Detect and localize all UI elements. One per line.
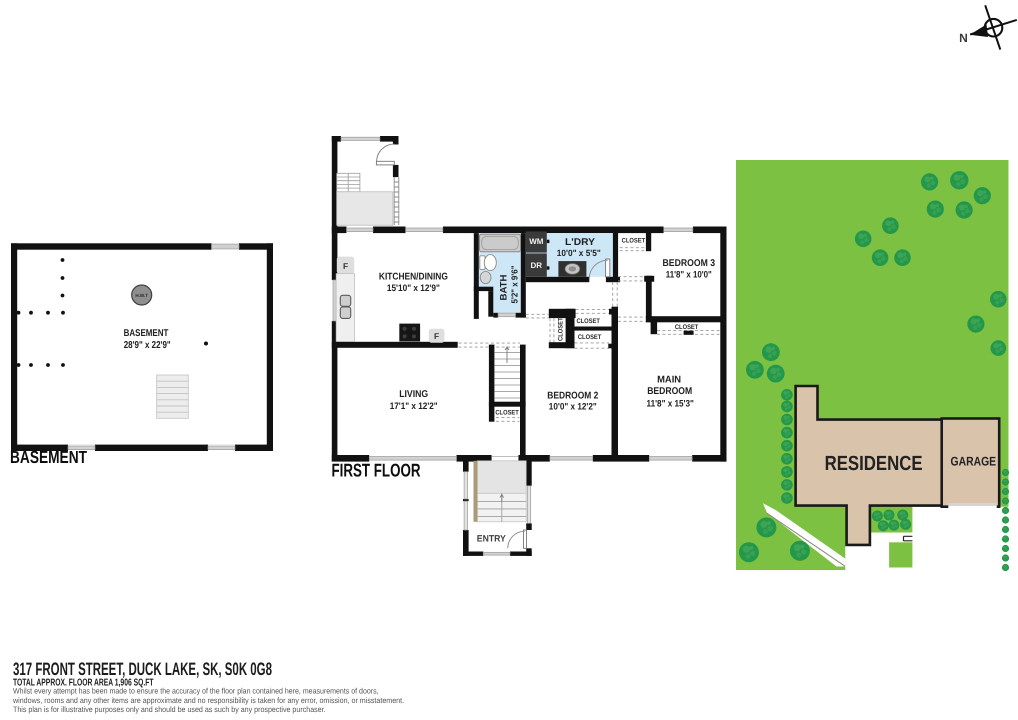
svg-text:ENTRY: ENTRY <box>477 534 506 544</box>
svg-text:317 FRONT STREET, DUCK LAKE, S: 317 FRONT STREET, DUCK LAKE, SK, S0K 0G8 <box>13 659 272 679</box>
svg-text:28'9" x 22'9": 28'9" x 22'9" <box>124 340 171 351</box>
svg-text:MAIN: MAIN <box>657 375 681 386</box>
svg-text:10'0" x 5'5": 10'0" x 5'5" <box>557 248 601 258</box>
svg-text:LIVING: LIVING <box>399 389 428 400</box>
svg-text:RESIDENCE: RESIDENCE <box>825 452 923 475</box>
svg-text:Whilst every attempt has been: Whilst every attempt has been made to en… <box>13 687 379 696</box>
svg-text:10'0" x 12'2": 10'0" x 12'2" <box>549 401 597 412</box>
svg-text:GARAGE: GARAGE <box>951 454 997 468</box>
svg-text:L'DRY: L'DRY <box>565 237 595 248</box>
svg-text:11'8" x 10'0": 11'8" x 10'0" <box>666 268 712 279</box>
svg-text:KITCHEN/DINING: KITCHEN/DINING <box>379 272 448 283</box>
svg-text:BASEMENT: BASEMENT <box>10 447 87 467</box>
svg-text:BATH: BATH <box>498 274 509 300</box>
svg-text:BASEMENT: BASEMENT <box>124 328 169 339</box>
svg-text:DR: DR <box>531 261 543 270</box>
svg-text:BEDROOM: BEDROOM <box>647 386 692 397</box>
svg-text:CLOSET: CLOSET <box>622 237 646 244</box>
svg-text:17'1" x 12'2": 17'1" x 12'2" <box>390 400 438 411</box>
svg-text:F: F <box>434 331 439 341</box>
svg-text:FIRST FLOOR: FIRST FLOOR <box>332 460 421 481</box>
svg-text:CLOSET: CLOSET <box>675 324 699 331</box>
svg-text:CLOSET: CLOSET <box>578 334 602 341</box>
svg-text:CLOSET: CLOSET <box>558 317 565 341</box>
svg-text:CLOSET: CLOSET <box>495 410 519 417</box>
svg-text:CLOSET: CLOSET <box>576 318 600 325</box>
svg-text:BEDROOM 3: BEDROOM 3 <box>663 258 716 269</box>
svg-text:WM: WM <box>529 237 544 246</box>
svg-text:H.W.T: H.W.T <box>135 293 148 298</box>
svg-text:windows, rooms and any other i: windows, rooms and any other items are a… <box>12 696 404 705</box>
svg-text:11'8" x 15'3": 11'8" x 15'3" <box>647 398 694 409</box>
svg-text:F: F <box>343 261 348 271</box>
svg-text:5'2" x 9'6": 5'2" x 9'6" <box>510 266 520 304</box>
svg-text:15'10" x 12'9": 15'10" x 12'9" <box>387 282 440 293</box>
svg-text:This plan is for illustrative: This plan is for illustrative purposes o… <box>13 705 326 714</box>
svg-text:N: N <box>959 31 968 45</box>
